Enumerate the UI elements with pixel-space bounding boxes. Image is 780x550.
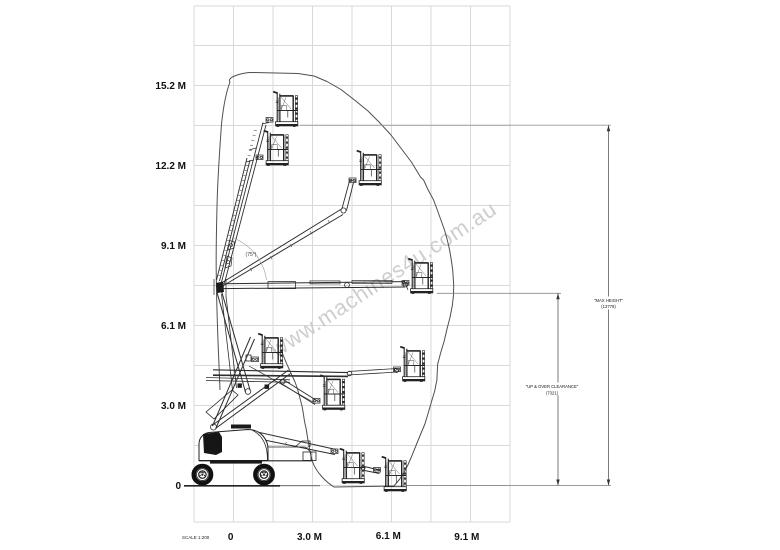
svg-text:6.1 M: 6.1 M bbox=[376, 531, 401, 542]
svg-text:15.2 M: 15.2 M bbox=[155, 81, 186, 92]
svg-text:9.1 M: 9.1 M bbox=[454, 532, 479, 543]
svg-text:0: 0 bbox=[175, 481, 181, 492]
svg-text:6.1 M: 6.1 M bbox=[161, 321, 186, 332]
svg-text:(7321): (7321) bbox=[546, 391, 559, 396]
svg-text:9.1 M: 9.1 M bbox=[161, 241, 186, 252]
svg-text:(13779): (13779) bbox=[601, 304, 616, 309]
svg-text:3.0 M: 3.0 M bbox=[161, 401, 186, 412]
svg-text:"UP & OVER CLEARANCE": "UP & OVER CLEARANCE" bbox=[526, 384, 579, 389]
svg-text:12.2 M: 12.2 M bbox=[155, 161, 186, 172]
svg-text:SCALE 1:200: SCALE 1:200 bbox=[182, 535, 210, 540]
svg-text:0: 0 bbox=[228, 532, 234, 543]
svg-text:3.0 M: 3.0 M bbox=[297, 532, 322, 543]
svg-text:"MAX HEIGHT": "MAX HEIGHT" bbox=[594, 298, 624, 303]
svg-text:(75°): (75°) bbox=[246, 252, 257, 258]
svg-text:www.machines4u.com.au: www.machines4u.com.au bbox=[265, 196, 501, 363]
